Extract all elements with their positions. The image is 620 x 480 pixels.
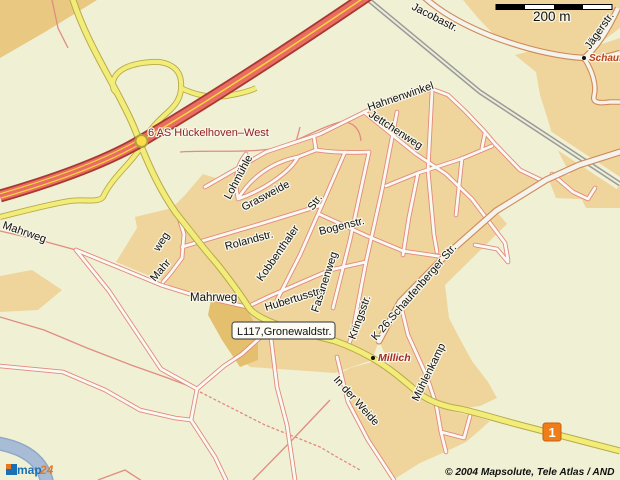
svg-text:map: map bbox=[17, 463, 42, 477]
svg-text:1: 1 bbox=[549, 425, 556, 440]
svg-text:Mahrweg: Mahrweg bbox=[190, 292, 237, 304]
svg-text:Schaufb: Schaufb bbox=[589, 53, 620, 64]
svg-text:L117,Gronewaldstr.: L117,Gronewaldstr. bbox=[237, 326, 332, 338]
svg-text:Millich: Millich bbox=[378, 352, 411, 364]
svg-text:© 2004 Mapsolute, Tele Atlas /: © 2004 Mapsolute, Tele Atlas / AND bbox=[445, 467, 615, 478]
svg-text:6 AS Hückelhoven–West: 6 AS Hückelhoven–West bbox=[148, 127, 269, 139]
svg-text:24: 24 bbox=[39, 463, 54, 477]
svg-text:200 m: 200 m bbox=[533, 9, 571, 24]
